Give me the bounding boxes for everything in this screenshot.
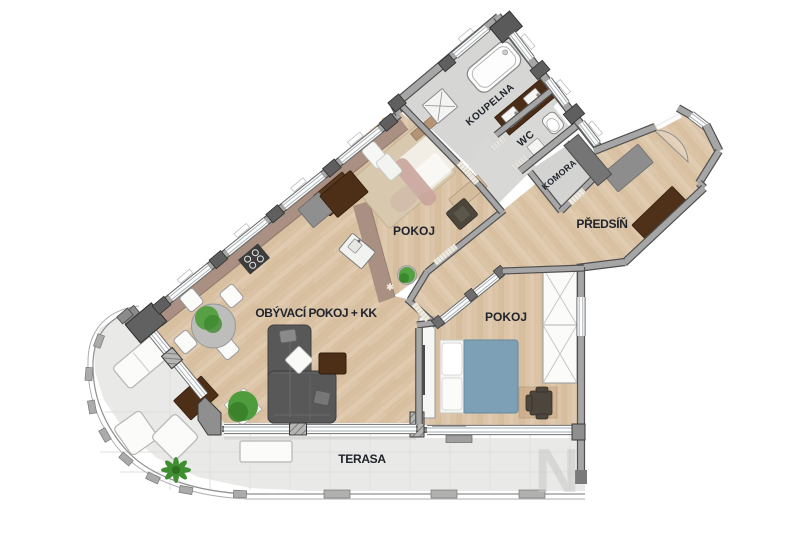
svg-text:OBÝVACÍ POKOJ + KK: OBÝVACÍ POKOJ + KK <box>255 305 377 320</box>
svg-text:TERASA: TERASA <box>338 452 386 466</box>
svg-text:N: N <box>535 437 580 506</box>
svg-text:PŘEDSÍŇ: PŘEDSÍŇ <box>576 216 627 231</box>
svg-text:POKOJ: POKOJ <box>485 310 527 324</box>
svg-text:POKOJ: POKOJ <box>393 224 435 238</box>
svg-text:✱: ✱ <box>386 282 394 292</box>
